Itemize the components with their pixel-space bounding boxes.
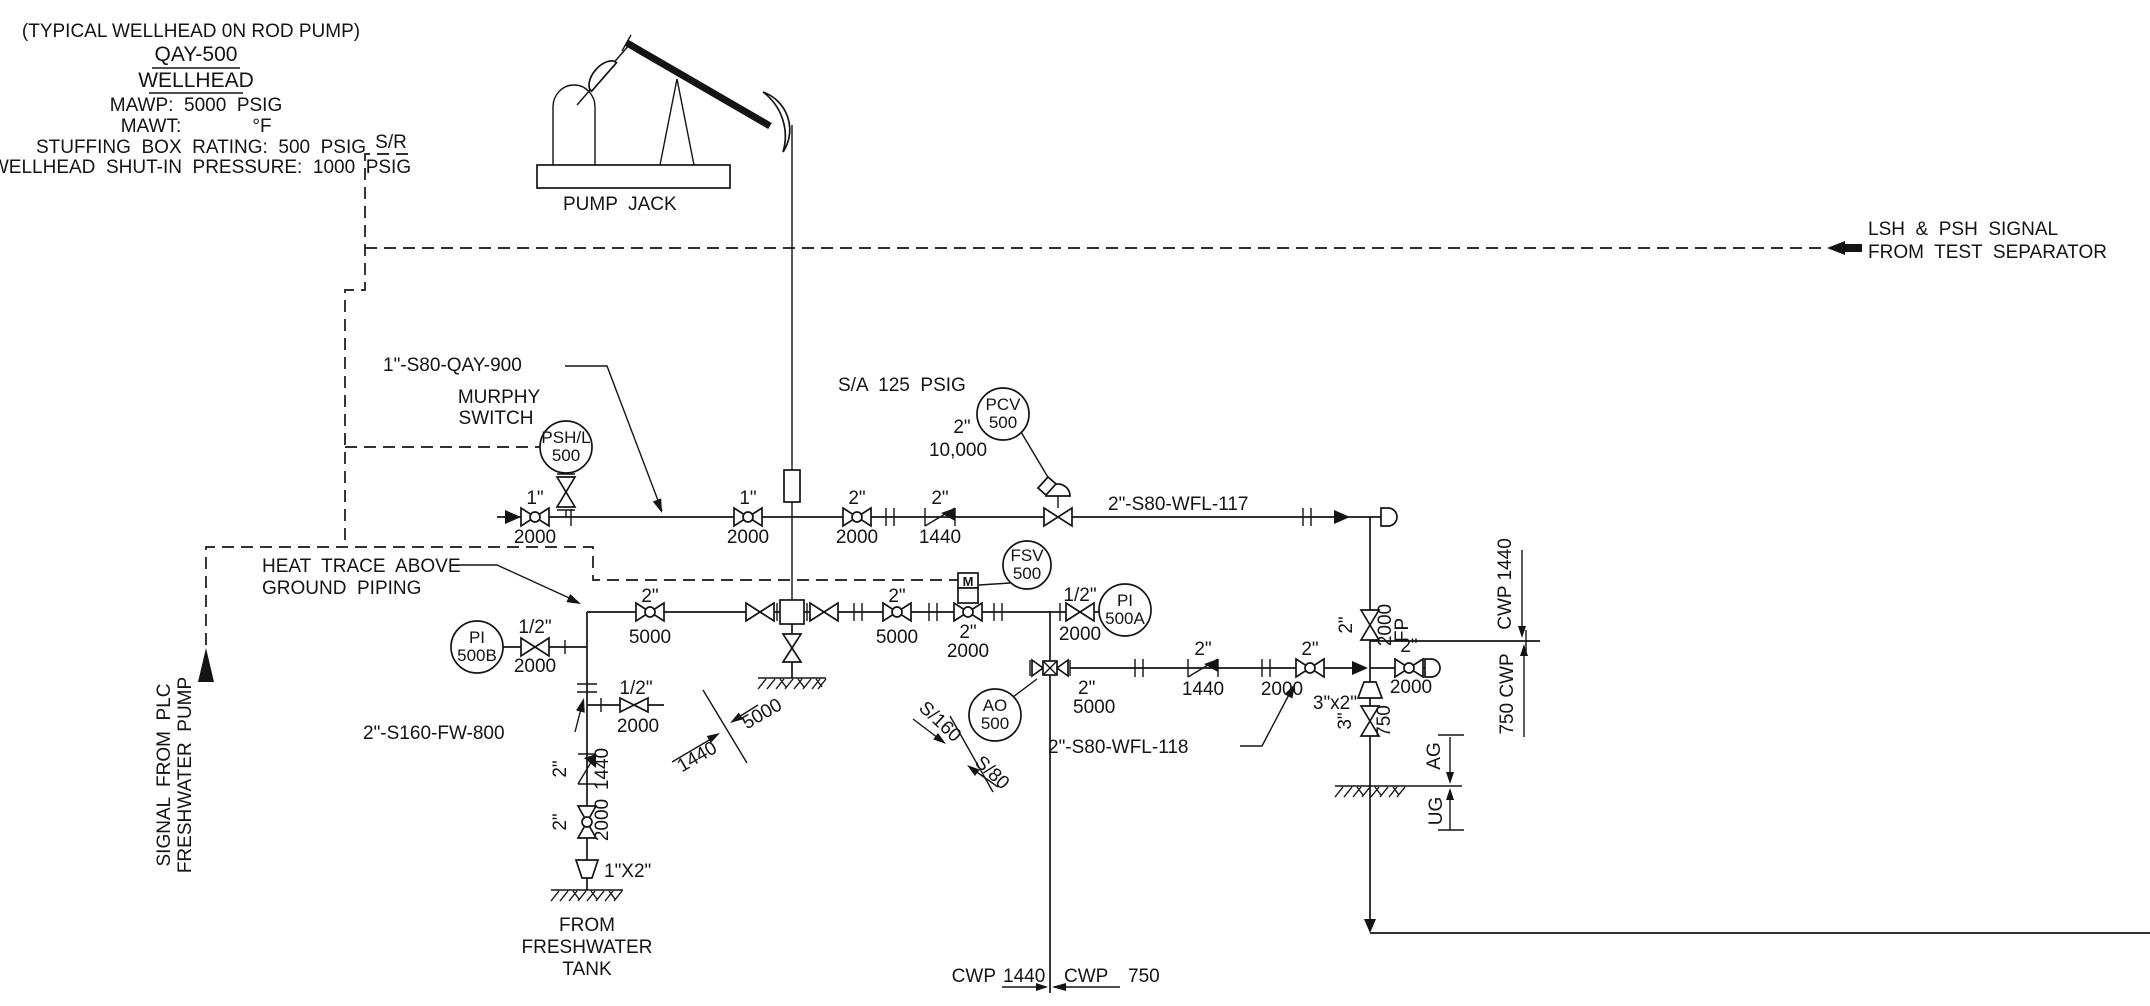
from-freshwater-line2: FRESHWATER: [522, 937, 653, 958]
shut-in-pressure: WELLHEAD SHUT-IN PRESSURE: 1000 PSIG: [0, 157, 411, 178]
valve-size: 2": [931, 488, 948, 509]
well-subtitle: WELLHEAD: [138, 69, 254, 92]
cwp-bottom-left: CWP: [952, 966, 996, 987]
valve-size: 2": [848, 488, 865, 509]
pi-500a-tag: PI: [1117, 591, 1133, 610]
plc-signal-line1: SIGNAL FROM PLC: [154, 684, 175, 867]
lsh-psh-signal-line1: LSH & PSH SIGNAL: [1868, 219, 2058, 240]
line-label-wfl117: 2"-S80-WFL-117: [1108, 494, 1249, 515]
pump-jack-label: PUMP JACK: [563, 194, 677, 215]
valve-size: 2": [1301, 639, 1318, 660]
pcv-tag: PCV: [986, 395, 1022, 414]
heat-trace-note-line2: GROUND PIPING: [262, 578, 421, 599]
valve-size: 2": [1400, 636, 1417, 657]
pi-500b-tag: PI: [469, 628, 485, 647]
valve-size: 2": [550, 760, 571, 777]
valve-size: 3": [1335, 712, 1356, 729]
valve-rating: 2000: [1059, 624, 1101, 645]
valve-size: 2": [550, 813, 571, 830]
murphy-switch-line2: SWITCH: [459, 408, 534, 429]
valve-rating: 2000: [592, 799, 613, 841]
line-label-qay900: 1"-S80-QAY-900: [383, 355, 522, 376]
valve-size: 1": [526, 488, 543, 509]
valve-size: 2": [641, 586, 658, 607]
murphy-switch-line1: MURPHY: [458, 387, 541, 408]
valve-rating: 750: [1374, 705, 1395, 737]
line-label-fw800: 2"-S160-FW-800: [363, 723, 505, 744]
motor-letter: M: [963, 574, 974, 589]
typical-note: (TYPICAL WELLHEAD 0N ROD PUMP): [22, 21, 360, 42]
psh-l-tag: PSH/L: [541, 428, 590, 447]
valve-rating: 2000: [727, 527, 769, 548]
pipe-end-cap: [1381, 508, 1397, 526]
valve-size: 1/2": [619, 678, 652, 699]
pcv-number: 500: [989, 413, 1017, 432]
mawt-value: °F: [252, 116, 271, 137]
heat-trace-note-line1: HEAT TRACE ABOVE: [262, 556, 461, 577]
cwp-bottom-right: CWP: [1064, 966, 1108, 987]
ao-number: 500: [981, 714, 1009, 733]
line3-size: 2": [1078, 678, 1095, 699]
valve-rating: 2000: [514, 527, 556, 548]
cwp-1440-label: CWP 1440: [1495, 538, 1516, 630]
wellhead-spool: [780, 600, 804, 624]
valve-size: 1": [739, 488, 756, 509]
valve-rating: 2000: [1390, 677, 1432, 698]
valve-size: 2": [1336, 616, 1357, 633]
valve-rating: 2000: [947, 641, 989, 662]
valve-rating: 10,000: [929, 440, 987, 461]
fsv-number: 500: [1013, 564, 1041, 583]
sa-pressure-label: S/A 125 PSIG: [838, 375, 966, 396]
stuffing-box: [784, 470, 800, 502]
pi-500a-number: 500A: [1105, 609, 1145, 628]
valve-size: 1/2": [1063, 585, 1096, 606]
above-grade-label: AG: [1424, 742, 1445, 769]
pid-drawing-sheet: (TYPICAL WELLHEAD 0N ROD PUMP) QAY-500 W…: [0, 0, 2150, 1006]
reducer-label: 3"x2": [1313, 693, 1357, 714]
line3-rating: 5000: [1073, 697, 1115, 718]
sr-label: S/R: [375, 132, 407, 153]
reducer-label: 1"X2": [604, 861, 651, 882]
under-grade-label: UG: [1426, 797, 1447, 826]
pi-500b-number: 500B: [457, 646, 497, 665]
valve-size: 2": [953, 417, 970, 438]
valve-rating: 2000: [1261, 679, 1303, 700]
ao-tag: AO: [983, 696, 1008, 715]
fsv-tag: FSV: [1010, 546, 1044, 565]
line-label-wfl118: 2"-S80-WFL-118: [1048, 737, 1189, 758]
valve-rating: 1440: [919, 527, 961, 548]
psh-l-number: 500: [552, 446, 580, 465]
valve-size: 1/2": [518, 617, 551, 638]
valve-rating: 2000: [617, 716, 659, 737]
valve-size: 2": [1194, 639, 1211, 660]
mawt-label: MAWT:: [121, 116, 182, 137]
valve-size: 2": [959, 622, 976, 643]
cwp-bottom-right-value: 750: [1128, 966, 1160, 987]
valve-rating: 2000: [836, 527, 878, 548]
valve-rating: 5000: [629, 627, 671, 648]
plc-signal-line2: FRESHWATER PUMP: [175, 677, 196, 873]
valve-rating: 2000: [514, 656, 556, 677]
from-freshwater-line3: TANK: [562, 959, 612, 980]
mawp-line: MAWP: 5000 PSIG: [110, 95, 282, 116]
valve-rating: 1440: [1182, 679, 1224, 700]
valve-size: 2": [888, 586, 905, 607]
pid-diagram: (TYPICAL WELLHEAD 0N ROD PUMP) QAY-500 W…: [0, 0, 2150, 1006]
cwp-bottom-left-value: 1440: [1003, 966, 1045, 987]
valve-rating: 1440: [592, 748, 613, 790]
lsh-psh-signal-line2: FROM TEST SEPARATOR: [1868, 242, 2107, 263]
cwp-750-label: 750 CWP: [1497, 653, 1518, 734]
valve-rating: 5000: [876, 627, 918, 648]
well-tag: QAY-500: [155, 43, 238, 66]
stuffing-box-rating: STUFFING BOX RATING: 500 PSIG: [36, 137, 366, 158]
pipe-end-cap: [1425, 659, 1440, 677]
from-freshwater-line1: FROM: [559, 915, 615, 936]
